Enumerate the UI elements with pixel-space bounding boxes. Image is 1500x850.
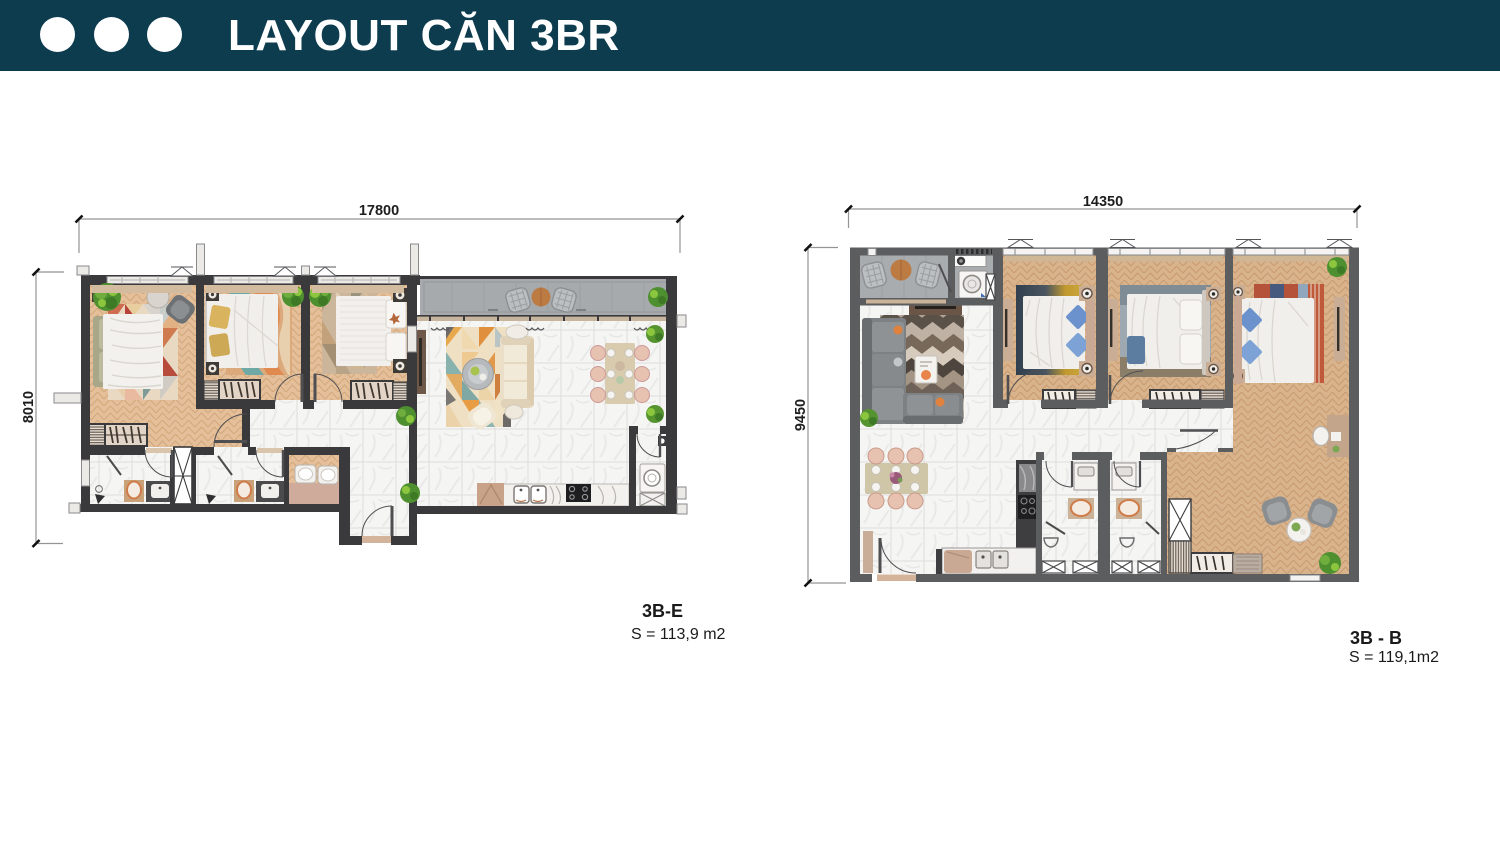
- svg-text:S = 113,9 m2: S = 113,9 m2: [631, 626, 726, 643]
- svg-text:9450: 9450: [793, 399, 809, 431]
- svg-text:S = 119,1m2: S = 119,1m2: [1349, 649, 1439, 666]
- svg-text:14350: 14350: [1083, 194, 1123, 210]
- svg-text:8010: 8010: [21, 391, 37, 423]
- svg-text:17800: 17800: [359, 203, 399, 219]
- svg-text:3B-E: 3B-E: [642, 601, 683, 621]
- svg-text:3B - B: 3B - B: [1350, 628, 1402, 648]
